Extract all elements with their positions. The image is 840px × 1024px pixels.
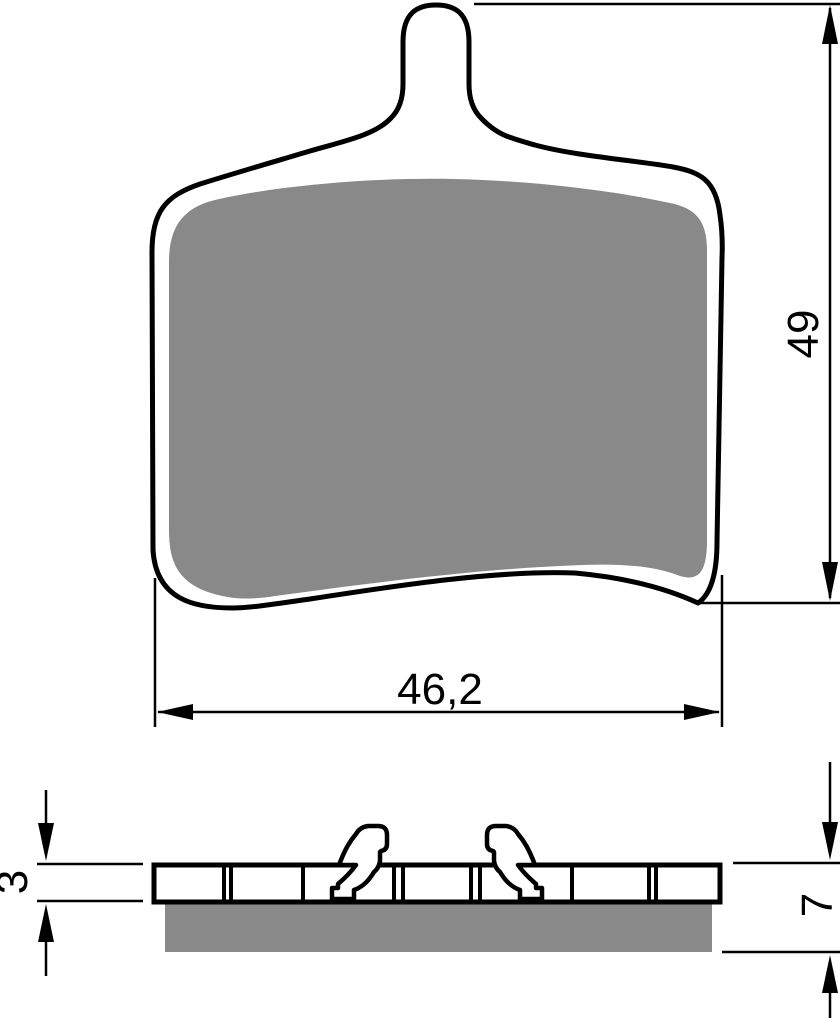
dim-total-arrow-bottom	[822, 955, 838, 993]
dim-backplate-thickness: 3	[0, 790, 143, 976]
dim-height-arrow-bottom	[822, 562, 838, 601]
backplate-side	[154, 865, 720, 902]
friction-surface	[169, 179, 707, 599]
dim-backplate-arrow-bottom	[38, 904, 54, 942]
dim-width-arrow-right	[684, 704, 720, 720]
dim-total-arrow-top	[822, 822, 838, 860]
dim-height-arrow-top	[822, 5, 838, 44]
side-view: 3 7	[0, 762, 840, 1018]
dim-height-label: 49	[779, 310, 828, 359]
dim-total-thickness: 7	[722, 762, 840, 1018]
top-view: 49 46,2	[152, 4, 840, 727]
dim-backplate-label: 3	[0, 870, 37, 894]
dim-backplate-arrow-top	[38, 823, 54, 861]
drawing-canvas: 49 46,2	[0, 0, 840, 1024]
dim-width-arrow-left	[157, 704, 193, 720]
brake-pad-technical-drawing: 49 46,2	[0, 0, 840, 1024]
dim-total-label: 7	[793, 893, 840, 917]
dim-width-label: 46,2	[397, 665, 483, 714]
friction-material-side	[165, 903, 712, 952]
